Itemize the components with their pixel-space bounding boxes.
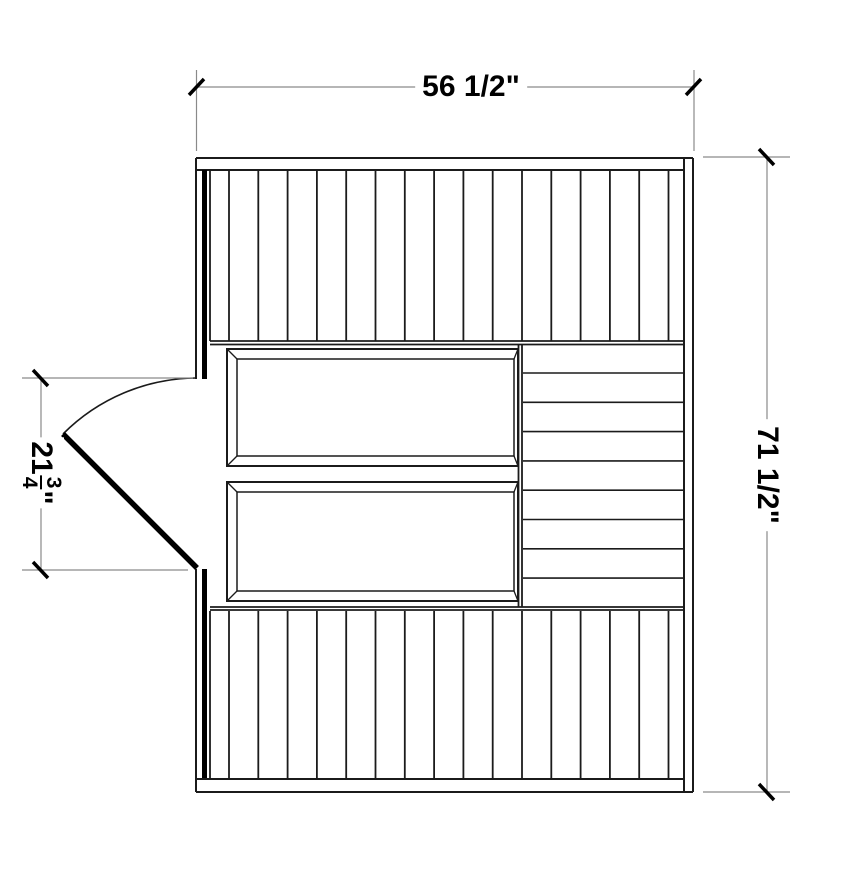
bench-upper-miter-bl [227, 456, 237, 466]
floor-plan-drawing [0, 0, 860, 879]
bench-lower-inner [237, 492, 514, 591]
floor-plan-canvas: 56 1/2" 71 1/2" 21 3 4 " [0, 0, 860, 879]
door [63, 378, 197, 568]
dimension-ticks [33, 79, 774, 800]
side-panel-planks [523, 373, 683, 578]
door-dimension-unit: " [26, 490, 56, 504]
bench-lower-outer [227, 482, 518, 601]
bench-upper-inner [237, 359, 514, 456]
bench-upper [227, 349, 518, 466]
width-dimension-text: 56 1/2" [422, 72, 520, 102]
bench-upper-miter-tl [227, 349, 237, 359]
door-dimension-whole: 21 [26, 441, 56, 474]
height-dimension-text: 71 1/2" [752, 426, 782, 524]
section-boundaries [210, 170, 684, 779]
height-dimension-label: 71 1/2" [751, 419, 783, 531]
width-dimension-label: 56 1/2" [415, 71, 527, 103]
door-swing-arc [63, 378, 196, 434]
door-dimension-fraction: 3 4 [19, 476, 63, 490]
top-panel-planks [229, 171, 669, 341]
bench-lower-miter-tl [227, 482, 237, 492]
door-dimension-numerator: 3 [40, 476, 63, 490]
structure-outline [196, 158, 693, 792]
bench-lower-miter-bl [227, 591, 237, 601]
door-dimension-denominator: 4 [19, 477, 40, 489]
bench-lower [227, 482, 518, 601]
door-panel [63, 434, 197, 568]
bench-upper-outer [227, 349, 518, 466]
bottom-panel-planks [229, 611, 669, 778]
door-opening-dimension-label: 21 3 4 " [18, 437, 64, 508]
